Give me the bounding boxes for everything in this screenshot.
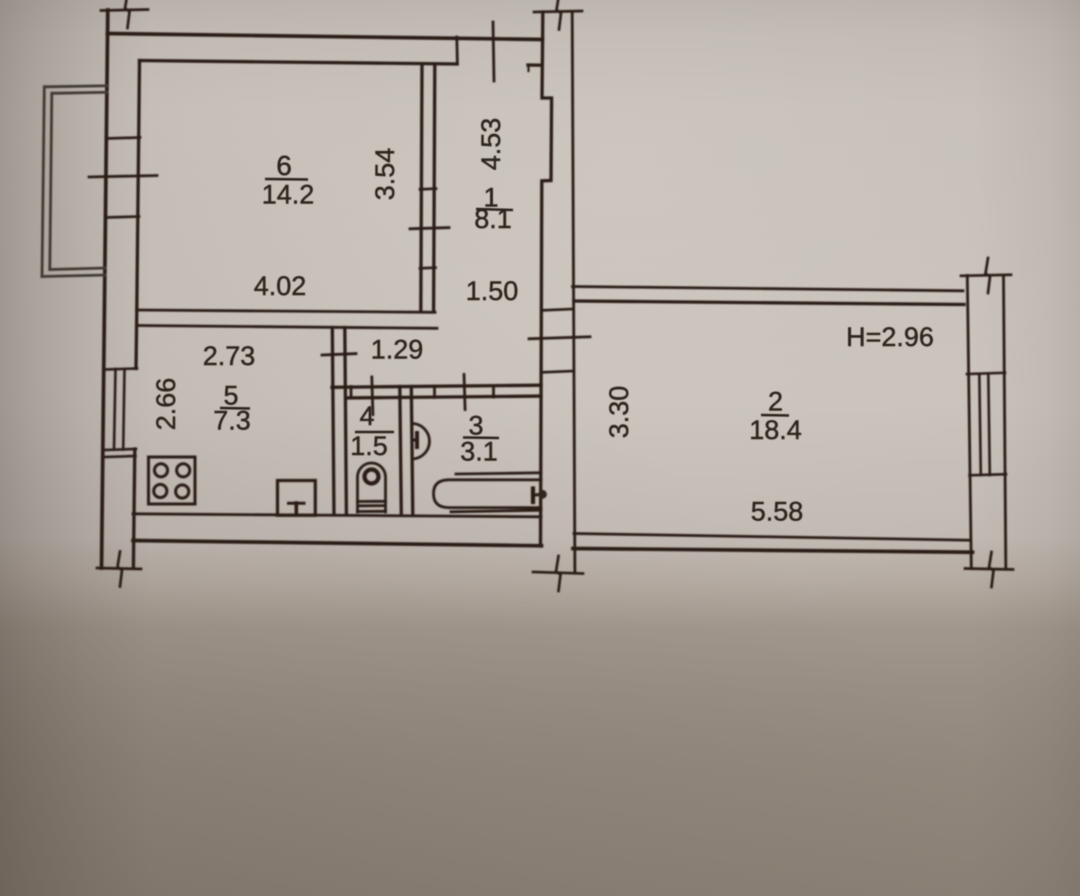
svg-text:2: 2 bbox=[768, 387, 783, 417]
svg-text:4.53: 4.53 bbox=[476, 118, 506, 171]
svg-text:1.5: 1.5 bbox=[350, 431, 388, 461]
svg-text:14.2: 14.2 bbox=[262, 180, 315, 210]
svg-text:3.30: 3.30 bbox=[604, 386, 634, 439]
svg-text:7.3: 7.3 bbox=[213, 406, 251, 436]
svg-text:5.58: 5.58 bbox=[751, 497, 804, 527]
svg-text:2.66: 2.66 bbox=[151, 378, 181, 431]
svg-text:6: 6 bbox=[276, 150, 292, 181]
svg-text:8.1: 8.1 bbox=[474, 204, 512, 234]
svg-text:3.1: 3.1 bbox=[460, 437, 498, 467]
svg-text:1.29: 1.29 bbox=[371, 335, 424, 365]
svg-text:18.4: 18.4 bbox=[749, 415, 802, 445]
svg-text:1.50: 1.50 bbox=[466, 276, 519, 306]
svg-text:3.54: 3.54 bbox=[370, 148, 400, 201]
svg-text:2.73: 2.73 bbox=[203, 341, 256, 371]
svg-text:H=2.96: H=2.96 bbox=[846, 322, 934, 352]
svg-text:4: 4 bbox=[359, 401, 374, 431]
svg-text:4.02: 4.02 bbox=[254, 271, 307, 301]
